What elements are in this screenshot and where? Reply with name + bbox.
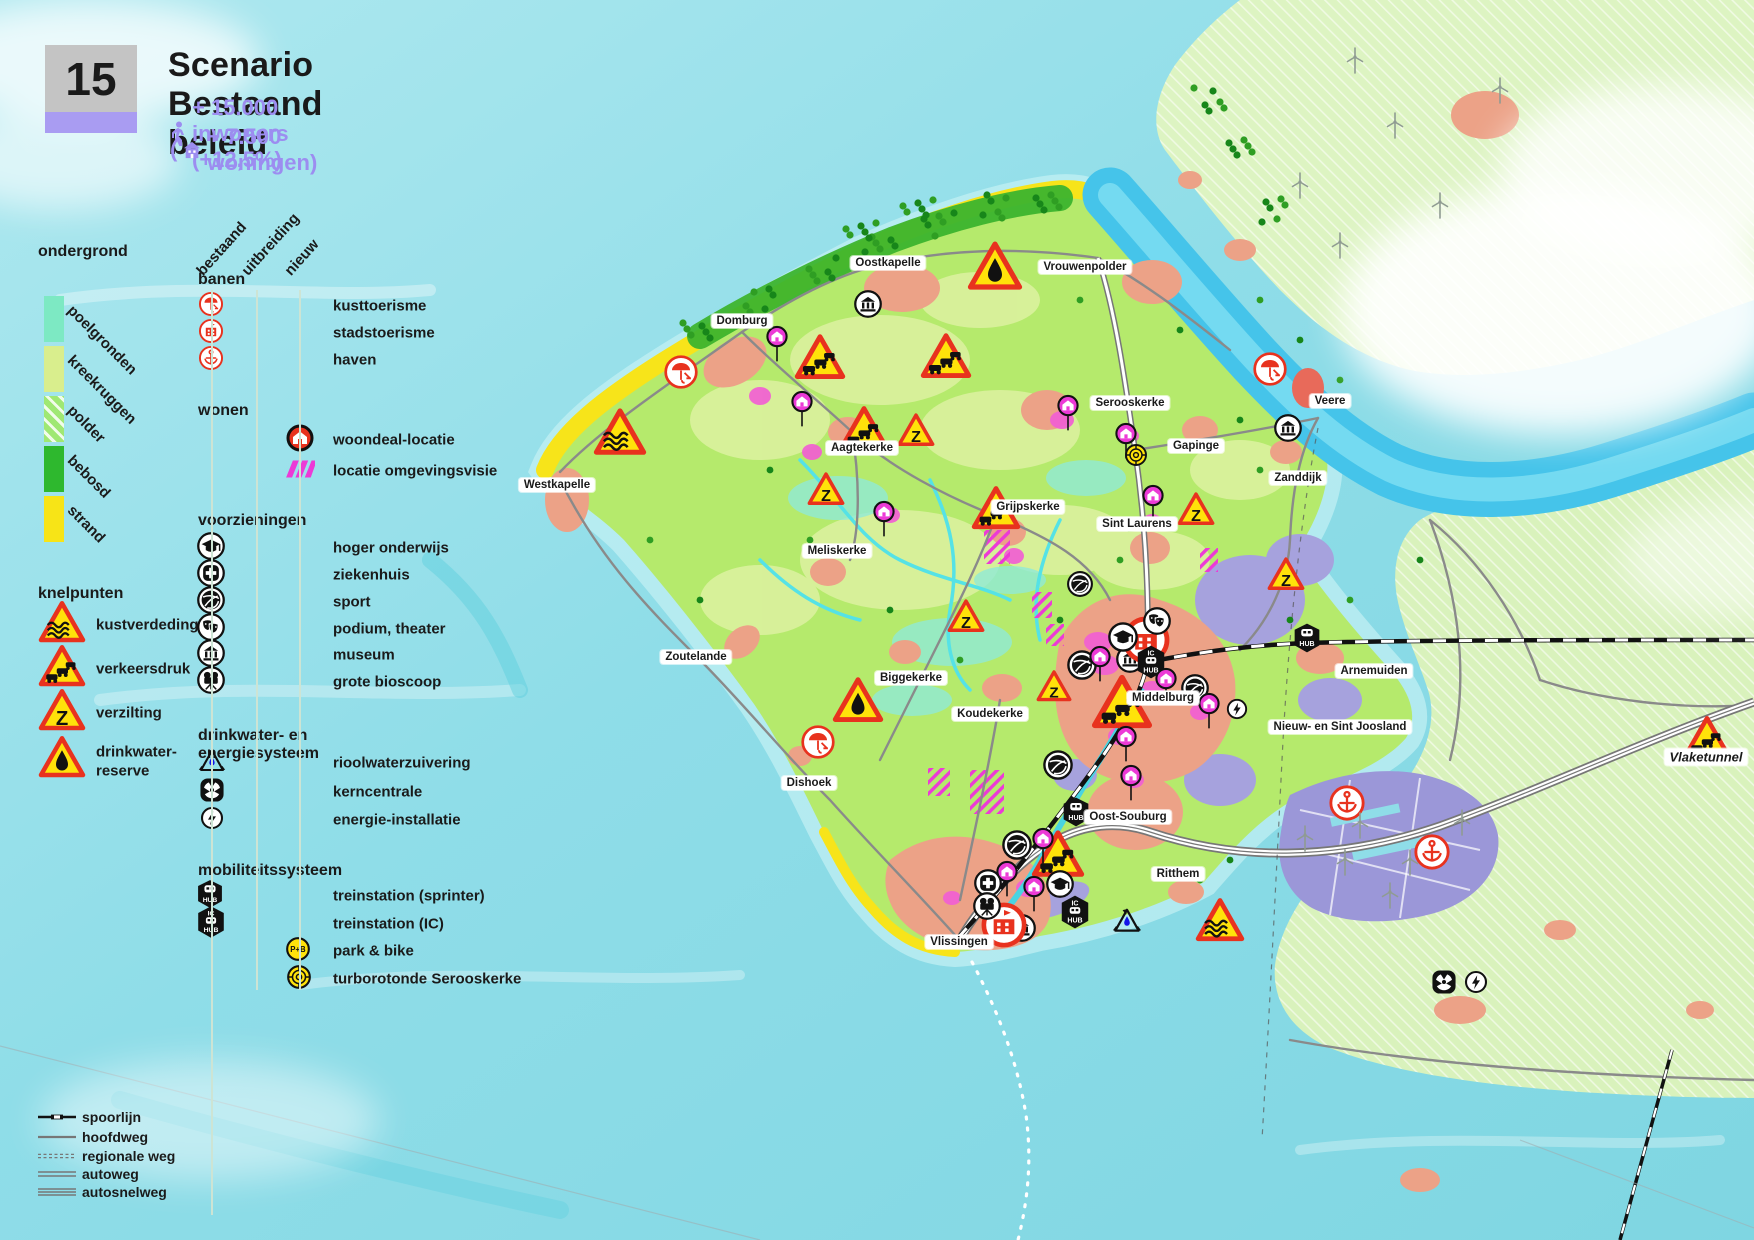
- voorzieningen-title: voorzieningen: [198, 512, 306, 530]
- legend-row-label: kusttoerisme: [333, 298, 426, 315]
- legend-row-label: energie-installatie: [333, 812, 461, 829]
- legend-row-label: podium, theater: [333, 621, 446, 638]
- scenario-number: 15: [45, 45, 137, 112]
- legend-row-label: treinstation (IC): [333, 916, 444, 933]
- svg-text:Z: Z: [56, 708, 68, 730]
- scenario-number-accent-bar: [45, 112, 137, 133]
- housing-subtitle: ( + 7.500 woningen): [170, 124, 317, 176]
- knelpunt-label: verkeersdruk: [96, 661, 190, 678]
- house-icon: [183, 141, 201, 159]
- road-label: autosnelweg: [82, 1184, 167, 1200]
- legend-row-label: haven: [333, 352, 376, 369]
- legend-row-label: stadstoerisme: [333, 325, 435, 342]
- verkeersdruk-triangle-icon: [38, 644, 86, 688]
- legend-row-label: turborotonde Serooskerke: [333, 971, 521, 988]
- swatch-polder: [44, 396, 64, 442]
- knelpunt-label: drinkwater-: [96, 744, 177, 761]
- legend-row-label: sport: [333, 594, 371, 611]
- knelpunt-label: kustverdeding: [96, 617, 199, 634]
- swatch-poelgronden: [44, 296, 64, 342]
- legend-row-label: grote bioscoop: [333, 674, 441, 691]
- swatch-kreekruggen: [44, 346, 64, 392]
- road-label: hoofdweg: [82, 1129, 148, 1145]
- park-bike-icon: P+B: [285, 936, 311, 962]
- legend-row-label: treinstation (sprinter): [333, 888, 485, 905]
- legend-row-label: woondeal-locatie: [333, 432, 455, 449]
- mobiliteit-title: mobiliteitssysteem: [198, 862, 342, 880]
- map-canvas: [0, 0, 1754, 1240]
- legend-row-label: kerncentrale: [333, 784, 422, 801]
- housing-paren: (: [170, 137, 177, 163]
- kustverdediging-triangle-icon: [38, 600, 86, 644]
- swatch-strand: [44, 496, 64, 542]
- legend-row-label: hoger onderwijs: [333, 540, 449, 557]
- legend-row-label: locatie omgevingsvisie: [333, 463, 497, 480]
- legend-row-label: park & bike: [333, 943, 414, 960]
- banen-title: banen: [198, 271, 245, 289]
- ondergrond-title: ondergrond: [38, 243, 128, 261]
- drinkwater-triangle-icon: [38, 735, 86, 779]
- road-label: autoweg: [82, 1166, 139, 1182]
- legend-row-label: museum: [333, 647, 395, 664]
- column-guide-uitbreiding: [256, 290, 258, 990]
- knelpunt-label: verzilting: [96, 705, 162, 722]
- legend-row-label: ziekenhuis: [333, 567, 410, 584]
- verzilting-triangle-icon: Z: [38, 688, 86, 732]
- scenario-map-poster: ZZZZZZHUBHUBICHUBICHUB DomburgOostkapell…: [0, 0, 1754, 1240]
- scenario-number-box: 15: [45, 45, 137, 133]
- column-guide-bestaand: [211, 290, 213, 1215]
- column-guide-nieuw: [299, 290, 301, 990]
- swatch-bebosd: [44, 446, 64, 492]
- road-label: spoorlijn: [82, 1109, 141, 1125]
- road-label: regionale weg: [82, 1148, 175, 1164]
- legend-row-label: rioolwaterzuivering: [333, 755, 471, 772]
- knelpunt-label-line2: reserve: [96, 763, 149, 780]
- housing-text: + 7.500 woningen): [207, 124, 317, 176]
- locatie-omgevingsvisie-icon: [281, 459, 315, 479]
- wonen-title: wonen: [198, 402, 249, 420]
